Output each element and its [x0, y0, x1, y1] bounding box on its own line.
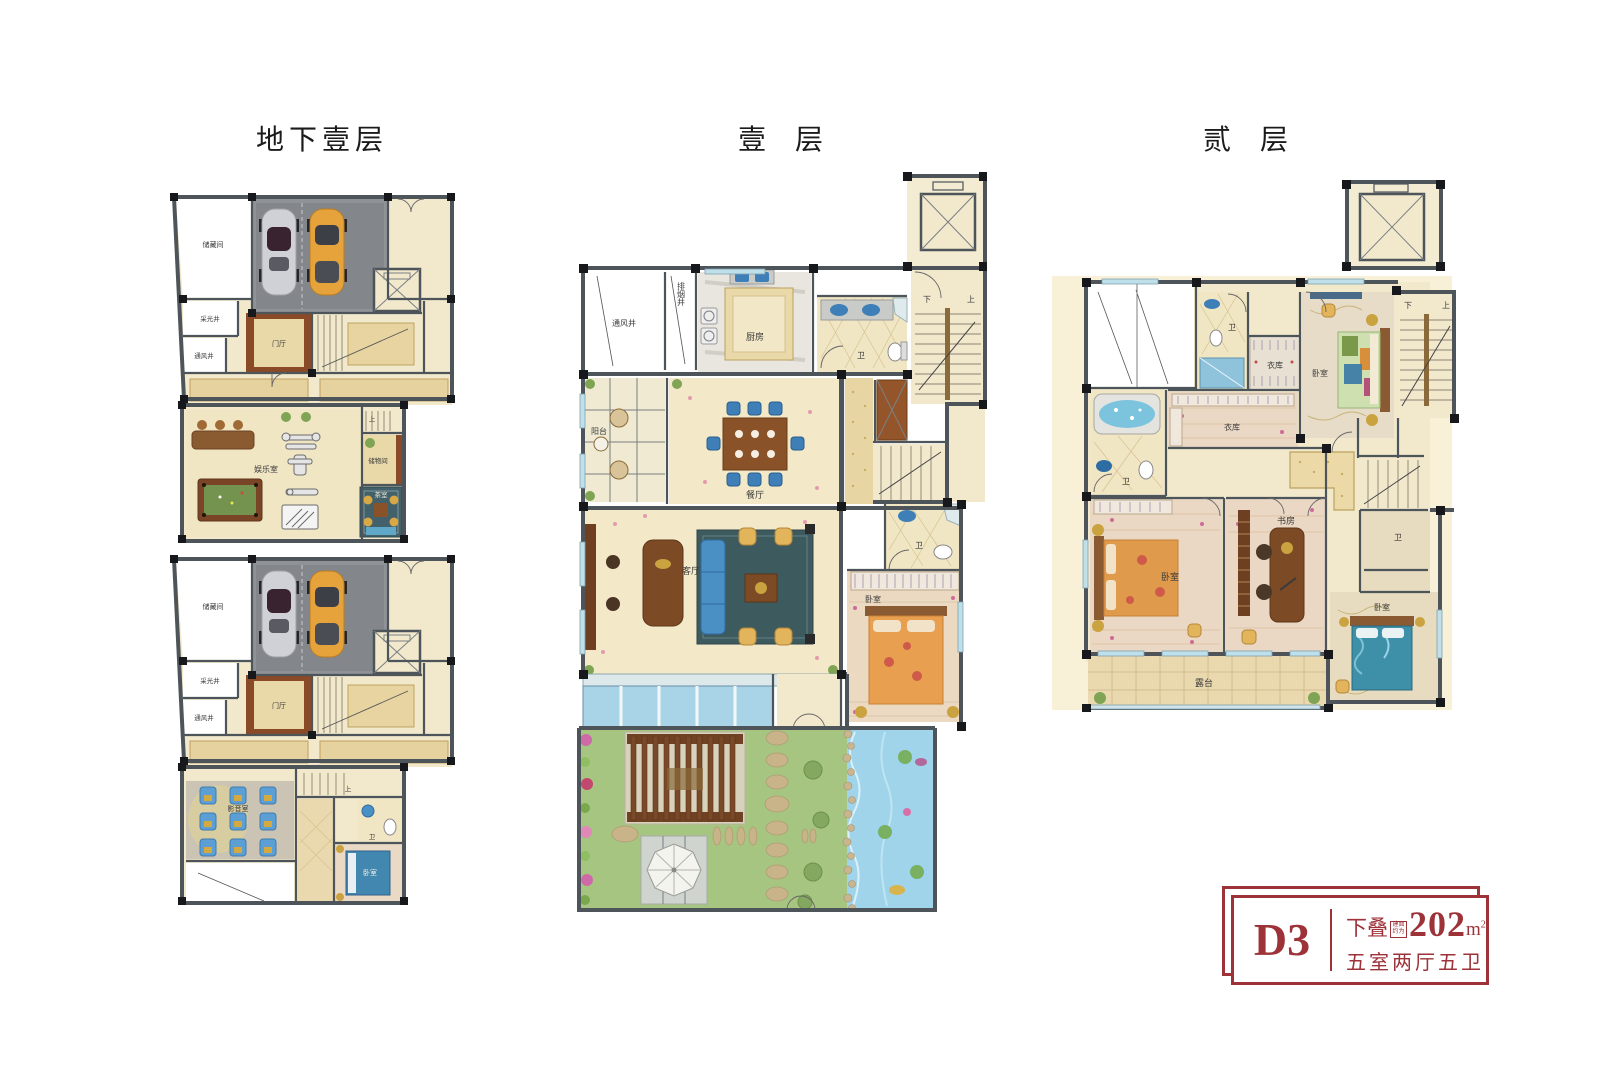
room-label: 书房	[1277, 515, 1295, 526]
hall-corridor	[845, 378, 873, 504]
stair-direction-label: 上	[1442, 301, 1450, 310]
stair-direction-label: 上	[369, 414, 376, 423]
room-label: 通风井	[194, 713, 214, 722]
lily-pad-icon	[910, 865, 924, 879]
room-label: 卫	[857, 351, 865, 360]
kitchen	[698, 270, 811, 372]
stair-direction-label: 下	[923, 295, 931, 304]
armchair-icon	[1336, 680, 1349, 693]
glass-panels	[583, 686, 773, 728]
garden-stream	[843, 728, 933, 912]
car-icon	[259, 209, 299, 295]
room-label: 阳台	[591, 426, 607, 436]
storage-room	[176, 199, 252, 299]
floor-plan-basement-upper: 储藏间 采光井 通风井 门厅 娱乐室 储物间 茶室 上	[158, 181, 458, 543]
room-label: 卧室	[1374, 602, 1390, 612]
room-label: 门厅	[272, 701, 286, 710]
bathroom-ensuite	[885, 504, 961, 570]
badge-info: 下叠 建面 约为 202 m2 五室两厅五卫	[1332, 906, 1486, 975]
plant-icon	[1094, 692, 1106, 704]
room-label: 卫	[1228, 323, 1236, 332]
area-unit-m: m	[1466, 919, 1481, 940]
room-label: 卫	[1394, 533, 1402, 542]
room-label: 餐厅	[746, 489, 764, 500]
stair-direction-label: 下	[1404, 301, 1412, 310]
desk-chair-icon	[1256, 584, 1272, 600]
unit-code: D3	[1234, 917, 1330, 963]
closet-door	[877, 380, 907, 440]
room-label: 卫	[915, 541, 923, 550]
dining-table-icon	[723, 418, 787, 470]
badge-area-line: 下叠 建面 约为 202 m2	[1346, 906, 1486, 942]
area-unit: m2	[1466, 920, 1486, 942]
nightstand-icon	[855, 706, 867, 718]
side-room	[424, 663, 452, 735]
room-label: 茶室	[375, 490, 389, 499]
billiards-table-icon	[198, 479, 262, 521]
cinema-seat-icon	[200, 787, 276, 856]
room-label: 门厅	[272, 339, 286, 348]
sofa-icon	[701, 540, 725, 634]
pergola-icon	[625, 732, 745, 824]
unit-badge: D3 下叠 建面 约为 202 m2 五室两厅五卫	[1222, 886, 1490, 986]
side-table-icon	[594, 437, 608, 451]
sink-icon	[862, 304, 880, 316]
bathroom-main	[817, 296, 907, 372]
desk-chair-icon	[1256, 544, 1272, 560]
car-icon	[307, 571, 347, 657]
staircase-icon	[315, 313, 422, 373]
room-label: 采光井	[200, 314, 220, 323]
armchair-icon	[1188, 624, 1201, 637]
basement-bathroom	[358, 799, 402, 843]
plant-icon	[281, 412, 291, 422]
armchair-icon	[1322, 304, 1335, 317]
bed-icon	[1350, 616, 1414, 690]
sink-icon	[362, 805, 374, 817]
room-label: 采光井	[200, 676, 220, 685]
room-label: 衣库	[1267, 360, 1283, 370]
rattan-chair-icon	[610, 461, 628, 479]
title-level1: 壹 层	[738, 118, 828, 158]
room-label: 卧室	[1161, 571, 1179, 582]
nightstand-icon	[1366, 414, 1378, 426]
rock-icon	[915, 758, 927, 766]
elevator-icon	[374, 631, 420, 673]
bed-icon	[865, 606, 947, 704]
small-stairs-icon	[298, 771, 382, 797]
room-label: 卧室	[1312, 368, 1328, 378]
stair-direction-label: 上	[345, 784, 352, 793]
room-label: 卧室	[865, 594, 881, 604]
room-label: 卫	[369, 833, 376, 841]
area-stamp: 建面 约为	[1390, 921, 1407, 938]
tv-cabinet-icon	[585, 524, 596, 650]
master-bedroom	[847, 570, 961, 722]
balcony	[583, 378, 665, 502]
floor-plan-basement-lower: 储藏间 采光井 通风井 门厅 影音室 卫 卧室 上	[158, 543, 458, 905]
plant-icon	[301, 412, 311, 422]
car-icon	[307, 209, 347, 295]
room-label: 娱乐室	[254, 464, 278, 474]
room-label: 通风井	[612, 318, 636, 328]
water-feature-icon	[366, 527, 396, 535]
rock-icon	[889, 885, 905, 895]
plant-icon	[672, 379, 682, 389]
entry-porch	[777, 674, 841, 730]
tea-table-icon	[374, 503, 388, 517]
unit-type: 下叠	[1346, 918, 1388, 942]
stamp-line: 约为	[1391, 929, 1406, 936]
side-room	[424, 301, 452, 373]
room-label: 卫	[1122, 477, 1130, 486]
plant-icon	[585, 379, 595, 389]
toilet-icon	[934, 545, 952, 559]
armchair-icon	[606, 597, 620, 611]
elevator-icon	[374, 269, 420, 311]
living-room	[583, 508, 841, 675]
room-label: 排烟井	[677, 281, 686, 307]
badge-frame-front: D3 下叠 建面 约为 202 m2 五室两厅五卫	[1231, 895, 1489, 985]
parasol-icon	[641, 836, 707, 904]
nightstand-icon	[1092, 620, 1104, 632]
lotus-flower-icon	[903, 808, 911, 816]
nightstand-icon	[1366, 314, 1378, 326]
bathroom-top	[1198, 292, 1247, 390]
toilet-icon	[1139, 461, 1153, 479]
room-label: 储藏间	[203, 240, 224, 249]
unexcavated-area	[186, 863, 294, 901]
room-label: 客厅	[682, 565, 700, 576]
armchair-icon	[606, 555, 620, 569]
small-stairs-icon	[1360, 458, 1424, 510]
closet-center	[1168, 392, 1298, 448]
room-label: 厨房	[746, 331, 764, 342]
nightstand-icon	[1092, 524, 1104, 536]
console-table-icon	[643, 540, 683, 626]
home-cinema-room	[186, 781, 294, 859]
wardrobe-icon	[1172, 394, 1294, 406]
storage-room	[176, 561, 252, 661]
room-label: 衣库	[1224, 422, 1240, 432]
room-label: 露台	[1195, 677, 1213, 688]
toilet-icon	[888, 343, 902, 361]
area-value: 202	[1409, 906, 1466, 942]
basket-icon	[1242, 630, 1256, 644]
bedroom-left	[1090, 498, 1222, 652]
room-label: 储物间	[368, 456, 388, 465]
bedroom-top-right	[1302, 292, 1394, 438]
room-label: 卧室	[363, 868, 377, 877]
title-level2: 贰 层	[1203, 118, 1293, 158]
nightstand-icon	[1415, 617, 1425, 627]
bed-icon	[1338, 328, 1390, 412]
floor-plan-level1: 通风井 排烟井 厨房 卫 阳台 餐厅 客厅 卫 卧室 下 上	[555, 172, 987, 912]
title-basement: 地下壹层	[256, 118, 388, 158]
sink-icon	[830, 304, 848, 316]
sink-icon	[1204, 299, 1220, 309]
car-icon	[259, 571, 299, 657]
dining-room	[669, 378, 839, 504]
room-configuration: 五室两厅五卫	[1346, 946, 1486, 975]
garden	[579, 728, 847, 910]
lily-pad-icon	[878, 825, 892, 839]
elevator-icon	[1360, 184, 1424, 260]
sink-icon	[1096, 460, 1112, 472]
plant-icon	[365, 438, 375, 448]
toilet-icon	[384, 819, 396, 835]
staircase-icon	[911, 268, 985, 404]
staircase-icon	[1398, 292, 1454, 418]
room-label: 储藏间	[203, 602, 224, 611]
nightstand-icon	[1339, 617, 1349, 627]
stair-direction-label: 上	[967, 295, 975, 304]
room-label: 通风井	[194, 351, 214, 360]
sink-icon	[898, 510, 916, 522]
staircase-icon	[315, 675, 422, 735]
toilet-icon	[1210, 330, 1222, 346]
stamp-line: 建面	[1391, 922, 1406, 929]
floor-plan-level2: 卫 衣库 卧室 下 上 卫 衣库 卧室 书房 卫 卧室 露台	[1042, 180, 1462, 712]
area-unit-sup: 2	[1481, 919, 1486, 930]
floorplan-page: { "titles": { "basement": "地下壹层", "level…	[0, 0, 1619, 1080]
plant-icon	[1308, 692, 1320, 704]
plant-icon	[585, 491, 595, 501]
bookshelf-icon	[1238, 510, 1250, 616]
rattan-chair-icon	[610, 409, 628, 427]
room-label: 影音室	[228, 804, 249, 813]
lily-pad-icon	[898, 750, 912, 764]
shaft-area	[1088, 284, 1194, 388]
nightstand-icon	[947, 706, 959, 718]
